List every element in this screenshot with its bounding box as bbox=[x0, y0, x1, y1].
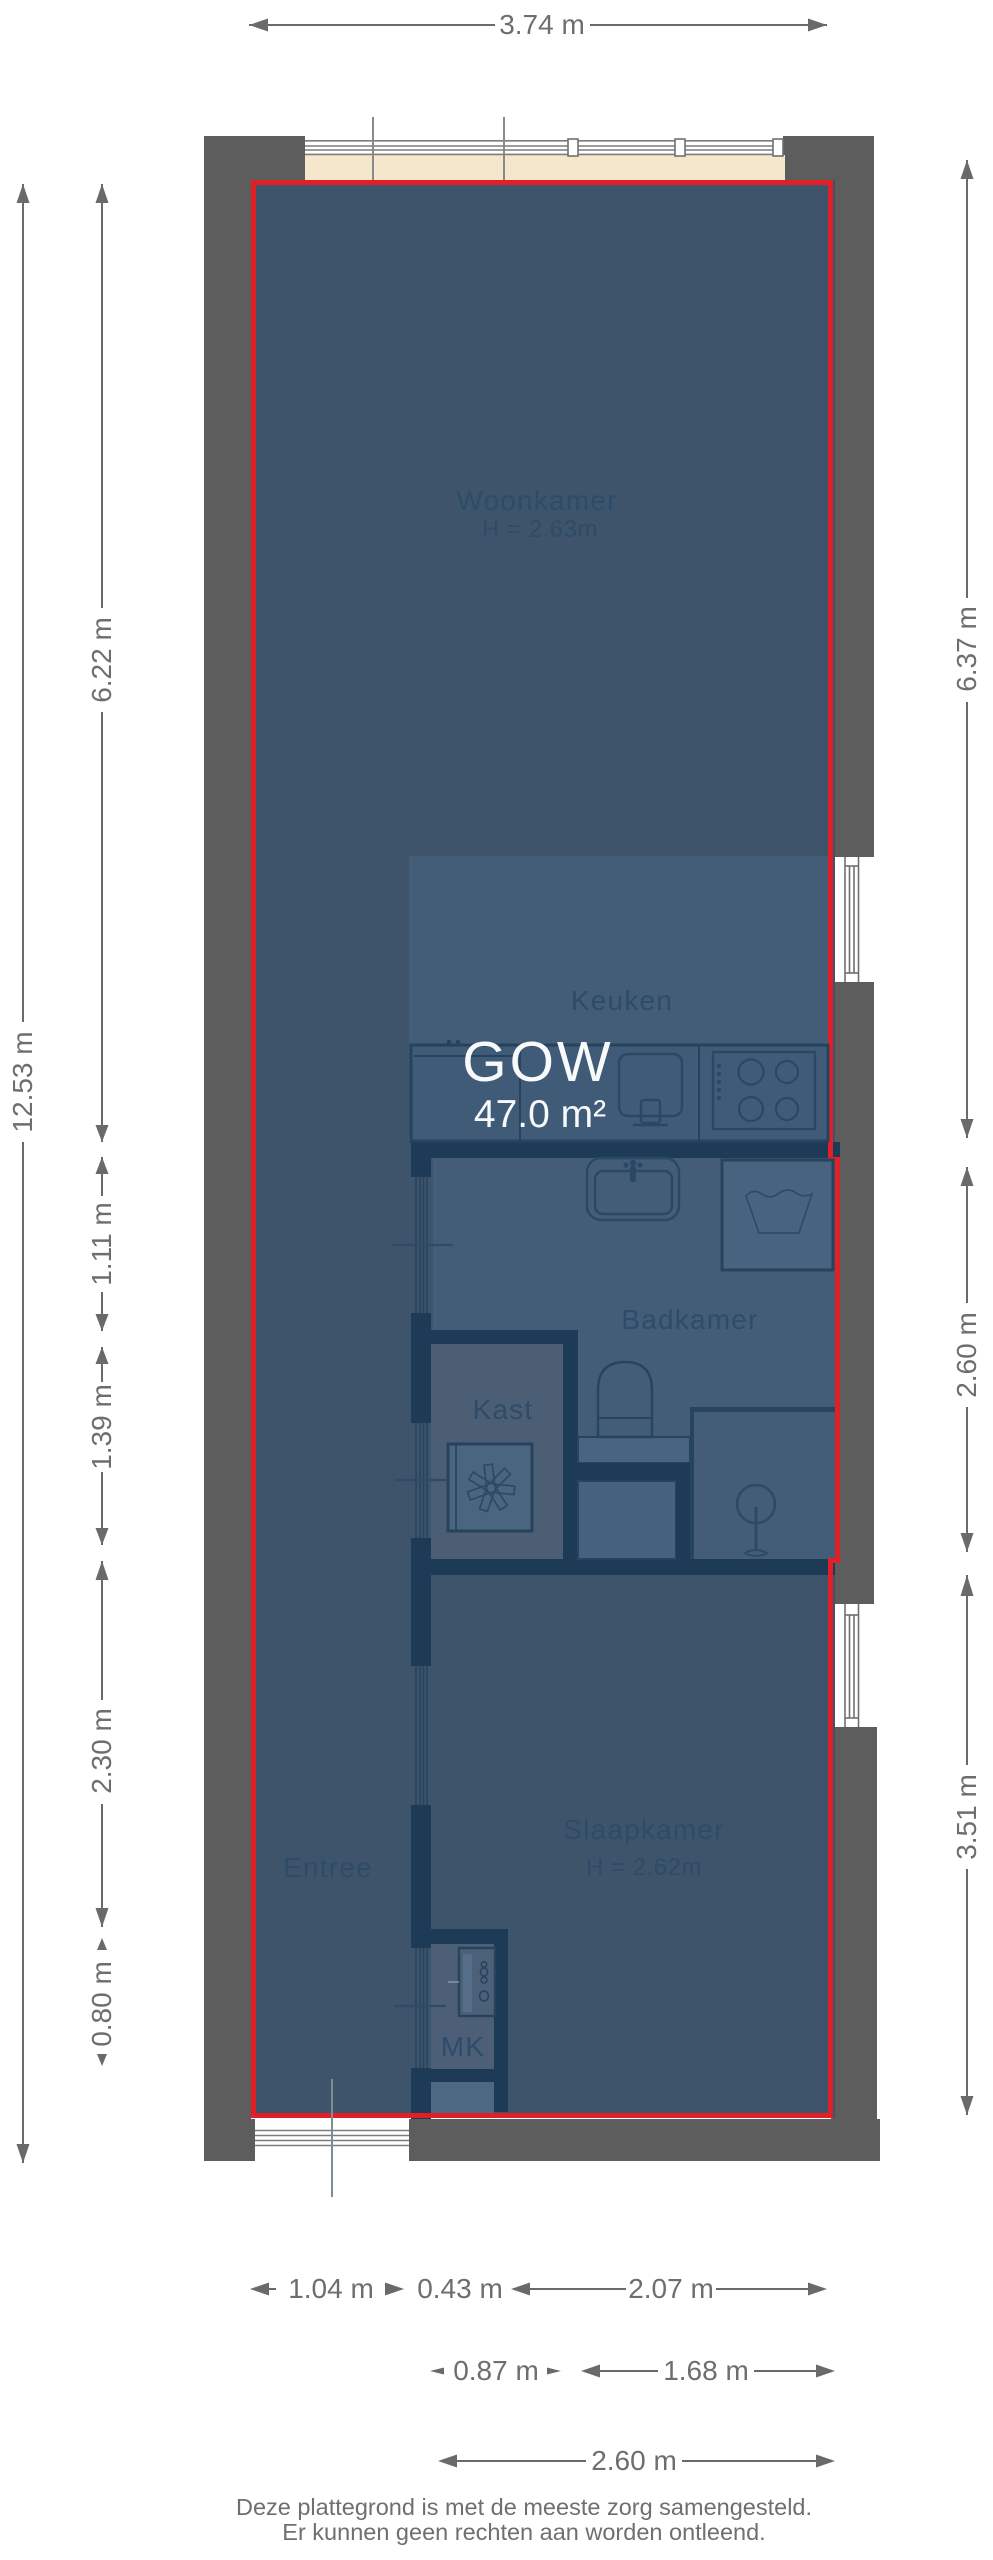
svg-text:47.0 m²: 47.0 m² bbox=[474, 1093, 606, 1136]
svg-text:GOW: GOW bbox=[462, 1030, 613, 1094]
svg-text:Entree: Entree bbox=[283, 1852, 373, 1883]
svg-text:Er kunnen geen rechten aan wor: Er kunnen geen rechten aan worden ontlee… bbox=[282, 2519, 765, 2545]
svg-text:Slaapkamer: Slaapkamer bbox=[563, 1814, 724, 1845]
svg-text:2.07 m: 2.07 m bbox=[628, 2273, 714, 2304]
svg-text:H = 2.62m: H = 2.62m bbox=[586, 1854, 702, 1881]
svg-text:2.60 m: 2.60 m bbox=[591, 2445, 677, 2476]
svg-text:0.87 m: 0.87 m bbox=[453, 2355, 539, 2386]
svg-text:Woonkamer: Woonkamer bbox=[456, 485, 617, 516]
svg-text:1.04 m: 1.04 m bbox=[288, 2273, 374, 2304]
svg-text:2.60 m: 2.60 m bbox=[951, 1312, 982, 1398]
svg-text:Deze plattegrond is met de mee: Deze plattegrond is met de meeste zorg s… bbox=[236, 2494, 812, 2520]
svg-text:Kast: Kast bbox=[473, 1394, 534, 1425]
svg-text:1.11 m: 1.11 m bbox=[86, 1202, 117, 1286]
svg-text:0.80 m: 0.80 m bbox=[86, 1961, 117, 2047]
svg-text:1.39 m: 1.39 m bbox=[86, 1384, 117, 1470]
svg-text:6.37 m: 6.37 m bbox=[951, 606, 982, 692]
svg-text:6.22 m: 6.22 m bbox=[86, 617, 117, 703]
svg-text:3.51 m: 3.51 m bbox=[951, 1774, 982, 1860]
svg-text:H = 2.63m: H = 2.63m bbox=[482, 516, 598, 543]
svg-text:12.53 m: 12.53 m bbox=[7, 1031, 38, 1132]
svg-text:Keuken: Keuken bbox=[571, 985, 673, 1016]
svg-text:2.30 m: 2.30 m bbox=[86, 1708, 117, 1794]
svg-text:Badkamer: Badkamer bbox=[621, 1304, 758, 1335]
svg-text:0.43 m: 0.43 m bbox=[417, 2273, 503, 2304]
svg-text:3.74 m: 3.74 m bbox=[499, 9, 585, 40]
svg-text:MK: MK bbox=[441, 2031, 485, 2062]
svg-text:1.68 m: 1.68 m bbox=[663, 2355, 749, 2386]
